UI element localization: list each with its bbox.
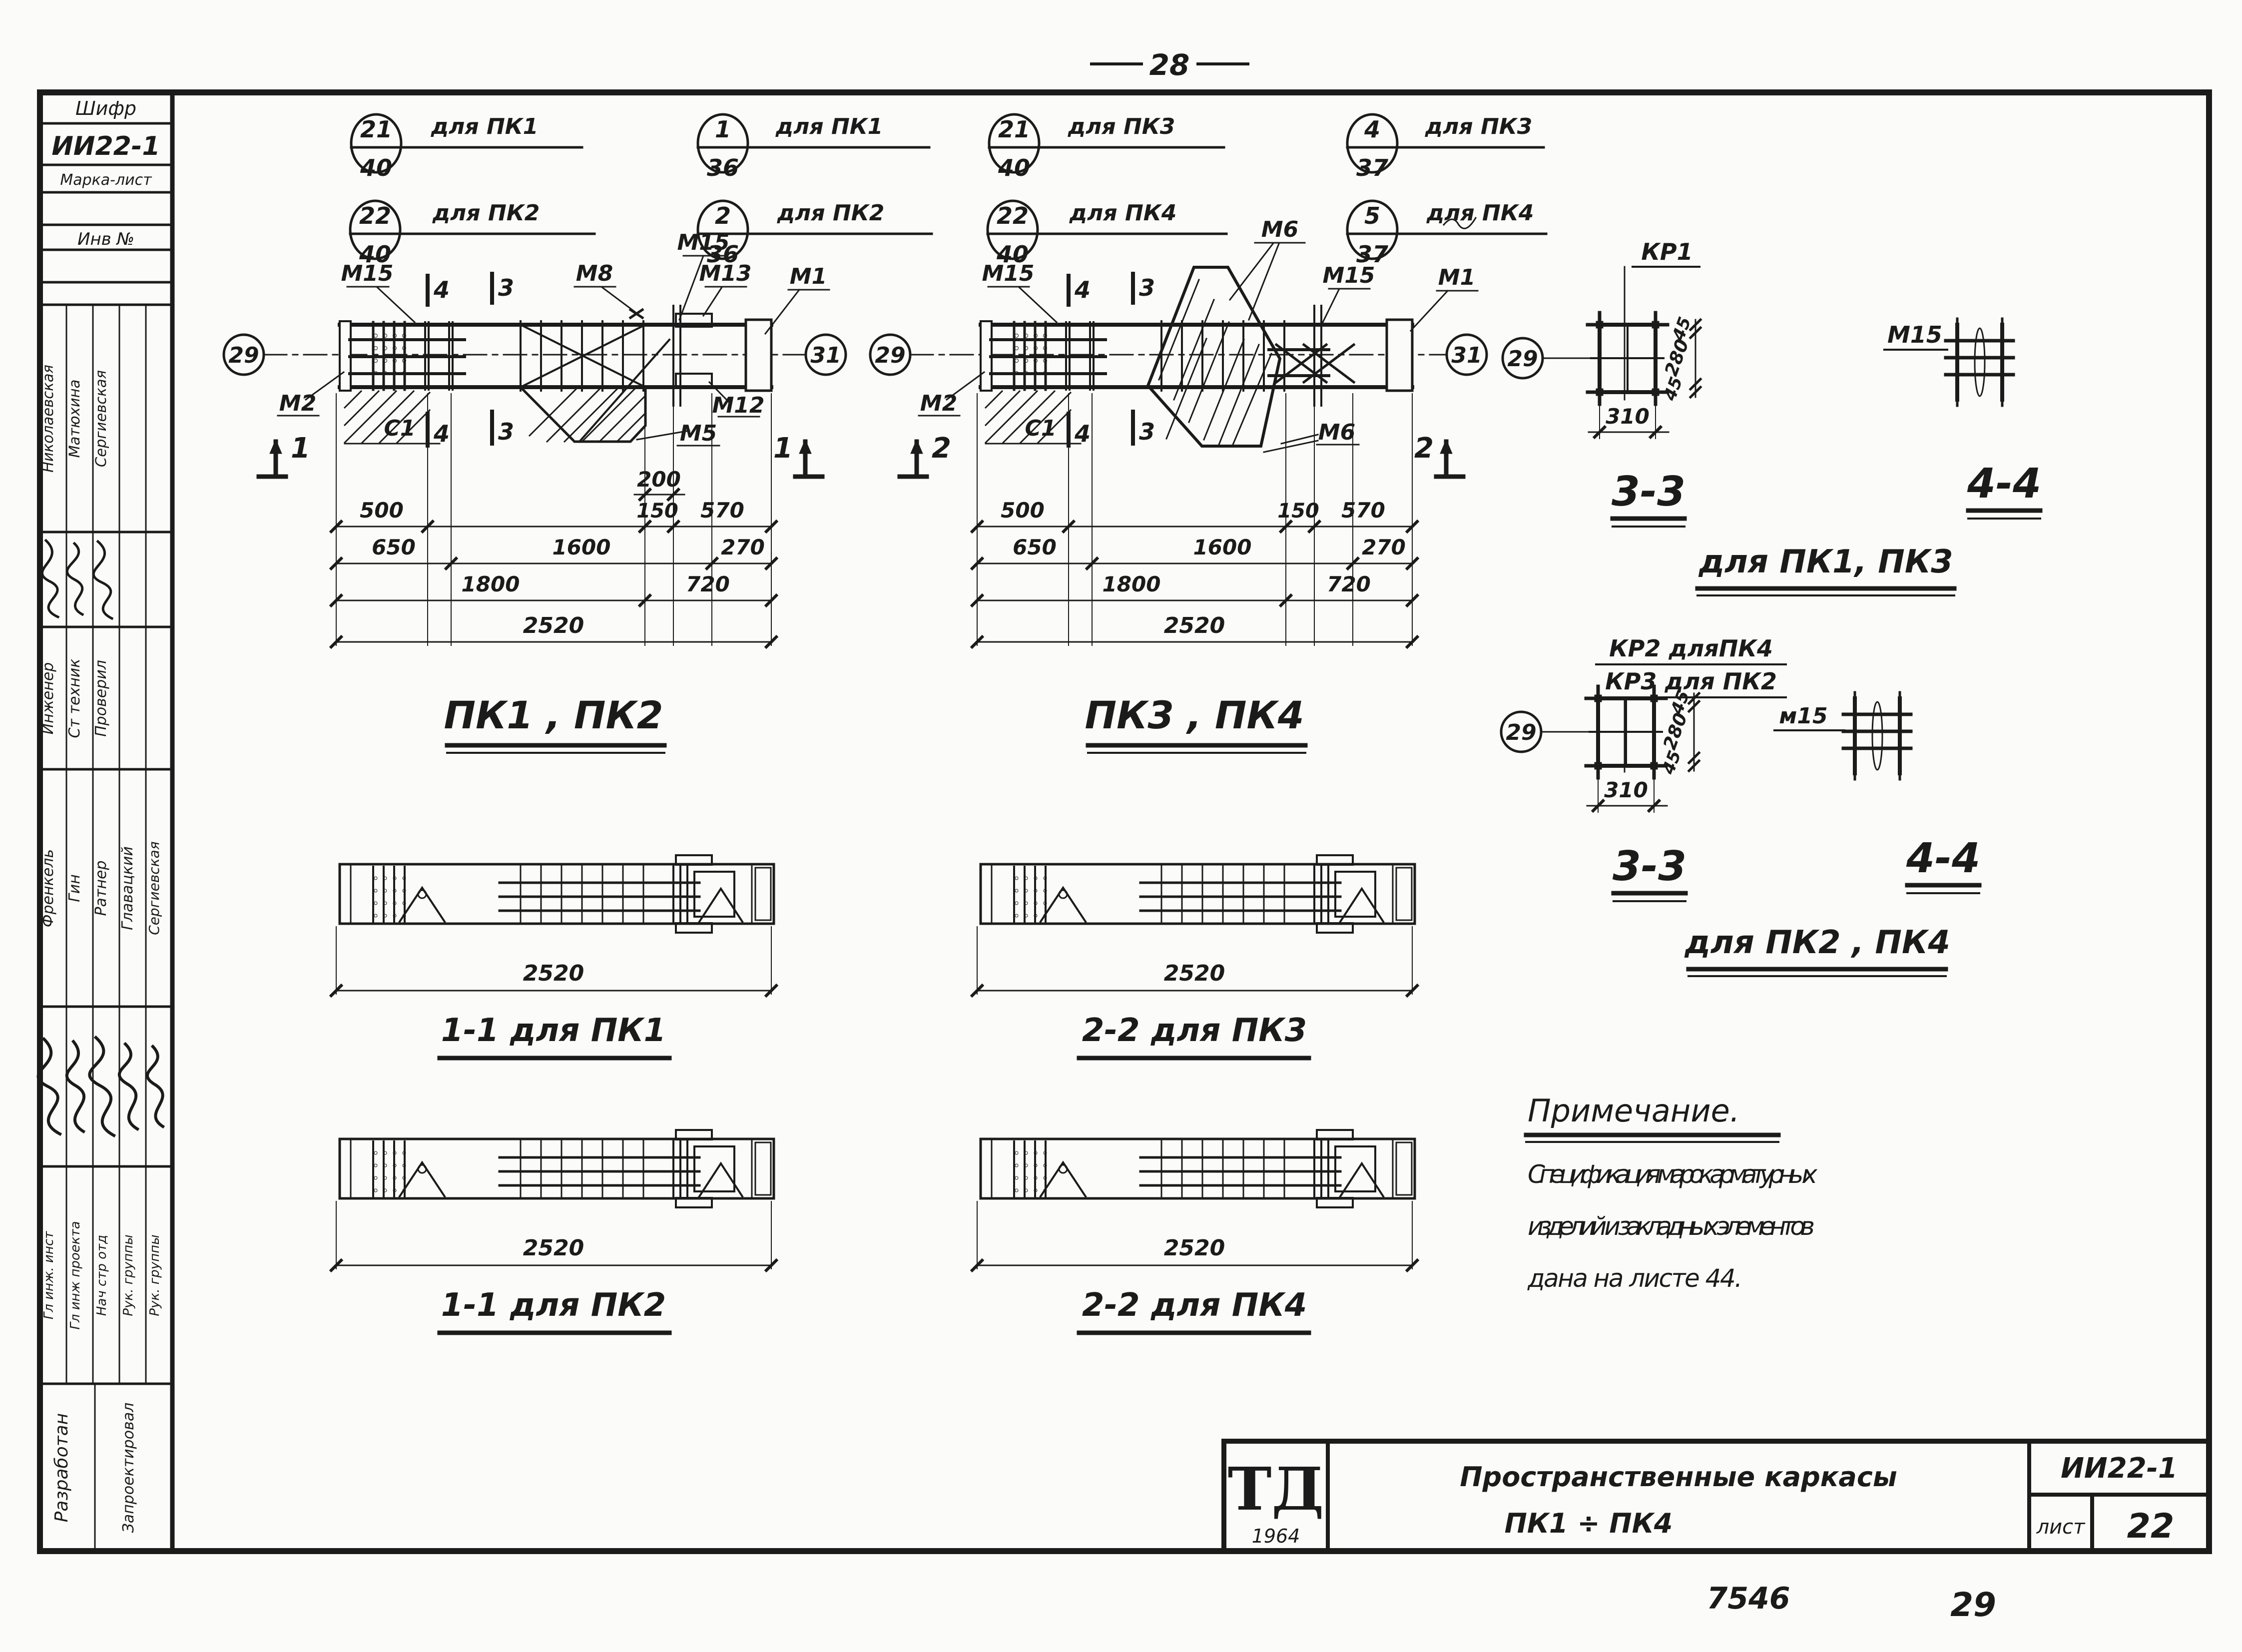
beam2-cut-marks: 2 2 [900, 432, 1463, 477]
side-dim-280: 280 [1661, 337, 1693, 379]
label-kr3: КР3 для ПК2 [1605, 668, 1777, 695]
callout-top: 21 [360, 116, 392, 143]
dim-310: 310 [1604, 778, 1648, 802]
plan-dim: 2520 [523, 961, 584, 986]
sidebar-designed-label: Запроектировал [120, 1403, 137, 1533]
sidebar-name: Главацкий [119, 846, 136, 930]
callout-note: для ПК1 [431, 114, 539, 139]
signature [67, 544, 82, 614]
sidebar-name: Сергиевская [92, 370, 109, 467]
callout-note: для ПК3 [1068, 114, 1175, 139]
label-m1: М1 [790, 264, 827, 289]
plan-dim: 2520 [1164, 1235, 1225, 1261]
callout-note: для ПК4 [1426, 200, 1534, 226]
titleblock-line1: Пространственные каркасы [1460, 1461, 1897, 1493]
titleblock-doc-code: ИИ22-1 [2061, 1452, 2178, 1485]
sheet-label: лист [2036, 1516, 2086, 1539]
axis-circle-right: 31 [810, 343, 841, 368]
signature [67, 1042, 84, 1131]
mark-3: 3 [498, 418, 514, 445]
sidebar-name: Френкель [39, 849, 57, 927]
sidebar-developed-label: Разработан [51, 1413, 72, 1523]
note-block: Примечание. Спецификация марок арматурны… [1526, 1093, 1817, 1293]
section-title-4-4: 4-4 [1906, 835, 1980, 882]
page-number-text: 28 [1149, 48, 1190, 82]
sidebar-marka-label: Марка-лист [60, 171, 152, 189]
dim-310: 310 [1606, 404, 1650, 429]
drawing-sheet: 28 Шифр ИИ22-1 Марка-лист Инв № Николаев… [0, 0, 2242, 1652]
note-line: дана на листе 44. [1527, 1264, 1742, 1293]
mark-3: 3 [498, 274, 514, 301]
plan-caption: 2-2 для ПК3 [1082, 1012, 1307, 1049]
dim-720: 720 [686, 572, 730, 596]
section-title-3-3: 3-3 [1613, 843, 1686, 890]
callout-note: для ПК2 [777, 200, 885, 226]
callout-bottom: 36 [707, 154, 739, 181]
label-m15: М15 [1887, 321, 1942, 348]
dim-270: 270 [721, 535, 765, 559]
mark-4: 4 [433, 420, 450, 447]
sidebar-name: Гин [66, 874, 83, 902]
sidebar-name: Николаевская [39, 365, 56, 473]
footer-page: 29 [1950, 1586, 1996, 1624]
footer-code: 7546 [1707, 1581, 1790, 1616]
callout-top: 2 [715, 202, 731, 229]
sheet-number: 22 [2127, 1507, 2175, 1546]
mark-3: 3 [1139, 418, 1155, 445]
logo-year: 1964 [1252, 1525, 1300, 1547]
section-square: 45 280 45 [1588, 313, 1700, 404]
signature [147, 1047, 163, 1126]
plan-dimensions-captions: 2520 2520 1-1 для ПК1 2-2 для ПК3 2520 2… [331, 927, 1417, 1333]
sidebar-role: Проверил [92, 660, 110, 737]
beam2-elevation: 29 31 [870, 217, 1487, 753]
signature [42, 541, 58, 617]
cut-mark-2: 2 [1414, 432, 1434, 465]
dim-2520: 2520 [523, 613, 584, 638]
callout-group-d: 4 37 для ПК3 5 37 для ПК4 [1347, 114, 1546, 268]
dim-1600: 1600 [553, 535, 611, 559]
drawing-canvas: 28 Шифр ИИ22-1 Марка-лист Инв № Николаев… [0, 0, 2242, 1652]
callout-bottom: 40 [360, 154, 392, 181]
sidebar-name: Ратнер [92, 860, 110, 916]
label-m12: М12 [712, 393, 764, 418]
label-kr1: КР1 [1641, 238, 1692, 265]
label-m1: М1 [1438, 265, 1475, 290]
label-m13: М13 [699, 261, 751, 286]
cut-mark-2: 2 [932, 432, 951, 465]
sidebar-name: Сергиевская [146, 841, 162, 935]
dim-150: 150 [1277, 500, 1319, 523]
axis-circle: 29 [1507, 346, 1538, 372]
section-subtitle: для ПК2 , ПК4 [1684, 924, 1950, 961]
title-block: ТД 1964 Пространственные каркасы ПК1 ÷ П… [1224, 1441, 2209, 1551]
mark-4: 4 [1074, 420, 1091, 447]
label-kr2: КР2 дляПК4 [1609, 635, 1773, 662]
callout-note: для ПК1 [775, 114, 883, 139]
section-subtitle: для ПК1, ПК3 [1698, 544, 1953, 580]
label-c1: С1 [384, 416, 416, 441]
plan-dim: 2520 [523, 1235, 584, 1261]
sidebar-role: Рук. группы [121, 1234, 136, 1316]
footer-marks: 7546 29 [1707, 1581, 1996, 1624]
side-dim-45: 45 [1668, 314, 1695, 344]
mark-3: 3 [1139, 274, 1155, 301]
m15-embed-part [1946, 319, 2013, 406]
note-line: изделий и закладных элементов [1528, 1212, 1815, 1241]
callout-group-a: 21 40 для ПК1 22 40 для ПК2 [350, 114, 594, 268]
dim-500: 500 [360, 498, 404, 523]
beam2-title: ПК3 , ПК4 [1085, 693, 1304, 737]
beam1-elevation: 29 31 [224, 230, 846, 753]
callout-note: для ПК4 [1069, 200, 1177, 226]
cut-mark-1: 1 [773, 432, 793, 465]
axis-circle: 29 [1506, 720, 1536, 745]
callout-note: для ПК2 [432, 200, 540, 226]
sidebar-role: Нач стр отд [94, 1235, 109, 1316]
plan-caption: 1-1 для ПК1 [441, 1012, 666, 1049]
sidebar-role: Ст техник [66, 659, 83, 738]
label-m6: М6 [1261, 217, 1298, 242]
titleblock-line2: ПК1 ÷ ПК4 [1505, 1508, 1673, 1539]
dim-720: 720 [1327, 572, 1371, 596]
sections-group1: КР1 29 310 М15 3-3 4-4 для ПК1, ПК3 [1503, 238, 2041, 595]
beam2-cross-braces [1269, 345, 1354, 382]
beam1-cut-marks: 1 1 [259, 432, 822, 477]
dim-150: 150 [636, 500, 678, 523]
note-line: Спецификация марок арматурных [1528, 1160, 1817, 1189]
dim-500: 500 [1001, 498, 1045, 523]
callout-top: 22 [359, 202, 391, 229]
section-title-3-3: 3-3 [1612, 468, 1685, 516]
sidebar-inv-label: Инв № [77, 229, 134, 249]
beam1-section-marks: 4 3 4 3 [428, 274, 514, 447]
axis-circle-right: 31 [1451, 343, 1482, 368]
sections-group2: КР2 дляПК4 КР3 для ПК2 29 310 м15 3-3 4-… [1501, 635, 1980, 976]
dim-570: 570 [700, 498, 744, 523]
sidebar-code-label: Шифр [75, 97, 136, 119]
label-m8: М8 [576, 261, 613, 286]
dim-270: 270 [1362, 535, 1406, 559]
mark-4: 4 [1074, 276, 1091, 303]
sidebar-role: Гл инж проекта [68, 1221, 83, 1329]
plan-view [340, 855, 774, 933]
plan-caption: 2-2 для ПК4 [1082, 1287, 1307, 1324]
label-c1: С1 [1025, 416, 1057, 441]
mark-4: 4 [433, 276, 450, 303]
dim-1600: 1600 [1193, 535, 1252, 559]
signature [93, 542, 112, 618]
dim-1800: 1800 [462, 572, 520, 596]
sidebar-stamp: Шифр ИИ22-1 Марка-лист Инв № Николаевска… [38, 97, 172, 1551]
callout-top: 5 [1364, 202, 1380, 229]
signature [119, 1044, 137, 1129]
sidebar-role: Инженер [39, 662, 57, 735]
label-m2: М2 [920, 391, 957, 416]
section-side-dims: 45 280 45 [1660, 314, 1700, 404]
callout-top: 1 [715, 116, 731, 143]
axis-circle-left: 29 [875, 343, 905, 368]
cut-mark-1: 1 [291, 432, 310, 465]
dim-200: 200 [637, 467, 681, 492]
callout-top: 21 [998, 116, 1030, 143]
sidebar-code-value: ИИ22-1 [51, 131, 160, 161]
beam1-title: ПК1 , ПК2 [444, 693, 663, 737]
callout-bottom: 40 [998, 154, 1030, 181]
callout-top: 4 [1364, 116, 1380, 143]
label-m15: М15 [341, 261, 393, 286]
sidebar-role: Рук. группы [147, 1234, 162, 1316]
plan-caption: 1-1 для ПК2 [441, 1287, 666, 1324]
note-title: Примечание. [1528, 1093, 1740, 1129]
side-dim-45: 45 [1660, 374, 1686, 404]
sidebar-name: Матюхина [66, 380, 83, 458]
callout-top: 22 [997, 202, 1029, 229]
callout-group-b: 1 36 для ПК1 2 36 для ПК2 [698, 114, 932, 268]
label-m15: М15 [677, 230, 729, 255]
label-m6: М6 [1318, 420, 1355, 445]
label-m15: М15 [1322, 263, 1375, 288]
dim-2520: 2520 [1164, 613, 1225, 638]
callout-bottom: 37 [1356, 154, 1388, 181]
label-m2: М2 [279, 391, 316, 416]
label-m15: м15 [1779, 703, 1827, 729]
page-number-top: 28 [1092, 48, 1248, 82]
dim-650: 650 [1013, 535, 1057, 559]
callout-note: для ПК3 [1425, 114, 1533, 139]
section-title-4-4: 4-4 [1967, 460, 2041, 508]
sidebar-role: Гл инж. инст [41, 1231, 56, 1319]
dim-570: 570 [1341, 498, 1385, 523]
dim-650: 650 [372, 535, 416, 559]
plan-dim: 2520 [1164, 961, 1225, 986]
callout-group-c: 21 40 для ПК3 22 40 для ПК4 [988, 114, 1226, 268]
logo-td: ТД [1228, 1454, 1324, 1524]
dim-1800: 1800 [1103, 572, 1161, 596]
label-m15: М15 [982, 261, 1034, 286]
beam2-section-marks: 4 3 4 3 [1069, 274, 1155, 447]
beam2-hatch [1153, 280, 1271, 445]
axis-circle-left: 29 [228, 343, 259, 368]
